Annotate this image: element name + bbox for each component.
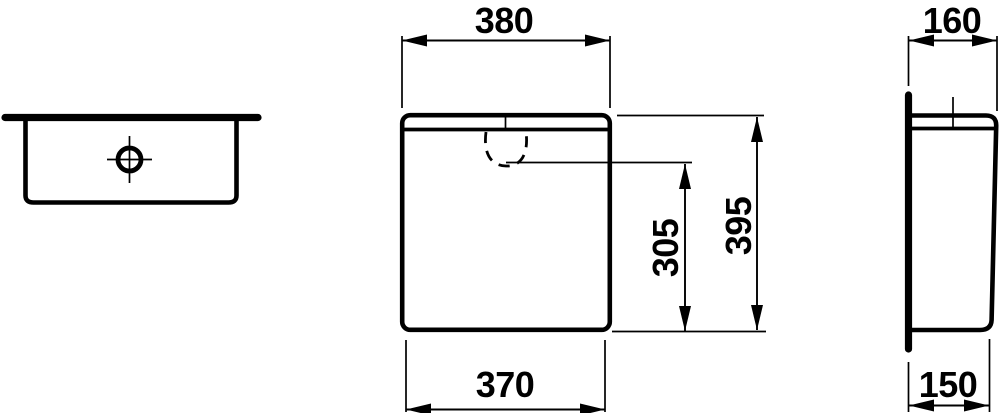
dimension-side-depth-top: 160 [909, 0, 998, 111]
dimension-front-recess-height: 305 [506, 163, 692, 332]
front-width-bottom-label: 370 [476, 364, 535, 405]
arrowhead-left-icon [402, 35, 427, 47]
arrowhead-right-icon [580, 404, 605, 413]
technical-drawing-canvas: 380 370 305 395 160 [0, 0, 1000, 413]
front-view [401, 114, 611, 330]
arrowhead-up-icon [751, 117, 763, 142]
arrowhead-down-icon [679, 306, 691, 331]
arrowhead-right-icon [585, 35, 610, 47]
top-view [5, 118, 258, 203]
dimension-front-width-top: 380 [402, 0, 610, 108]
front-view-body-outline [402, 115, 610, 330]
front-width-top-label: 380 [475, 0, 534, 41]
dimension-side-depth-bottom: 150 [909, 339, 990, 412]
cistern-three-view-drawing: 380 370 305 395 160 [0, 0, 1000, 413]
arrowhead-down-icon [751, 305, 763, 330]
side-depth-top-label: 160 [923, 0, 982, 41]
arrowhead-left-icon [406, 404, 431, 413]
dimension-front-width-bottom: 370 [406, 340, 605, 413]
side-depth-bottom-label: 150 [919, 364, 978, 405]
front-total-height-label: 395 [718, 196, 759, 255]
arrowhead-up-icon [679, 164, 691, 189]
side-view [909, 95, 997, 349]
front-view-hidden-recess [485, 132, 526, 166]
front-recess-height-label: 305 [645, 218, 686, 277]
dimension-front-total-height: 395 [612, 116, 766, 332]
side-view-body-outline [912, 116, 996, 331]
